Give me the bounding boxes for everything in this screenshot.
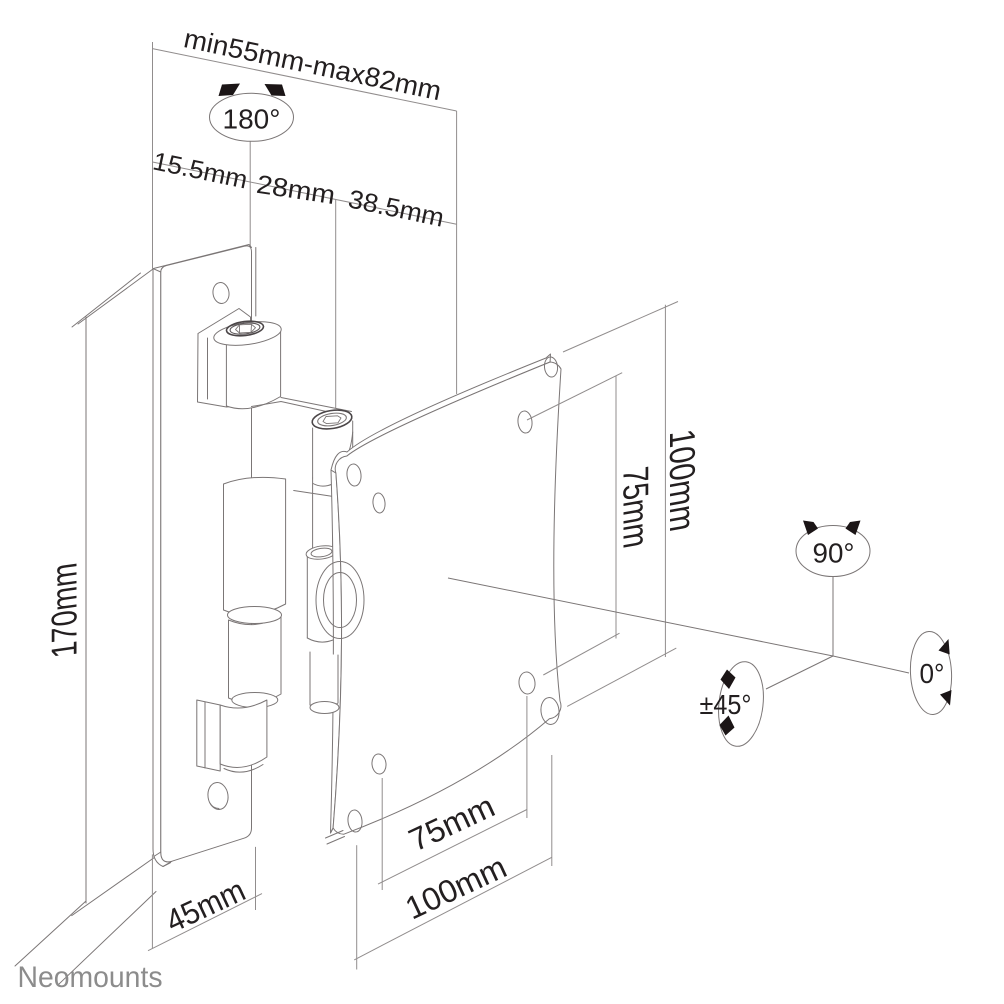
svg-text:90°: 90° xyxy=(813,538,855,569)
svg-text:75mm: 75mm xyxy=(615,464,656,551)
svg-text:±45°: ±45° xyxy=(700,689,752,720)
svg-text:170mm: 170mm xyxy=(43,561,84,661)
svg-text:Neomounts: Neomounts xyxy=(18,961,163,994)
svg-text:0°: 0° xyxy=(920,658,945,689)
svg-text:100mm: 100mm xyxy=(662,426,703,534)
svg-text:180°: 180° xyxy=(223,104,281,135)
